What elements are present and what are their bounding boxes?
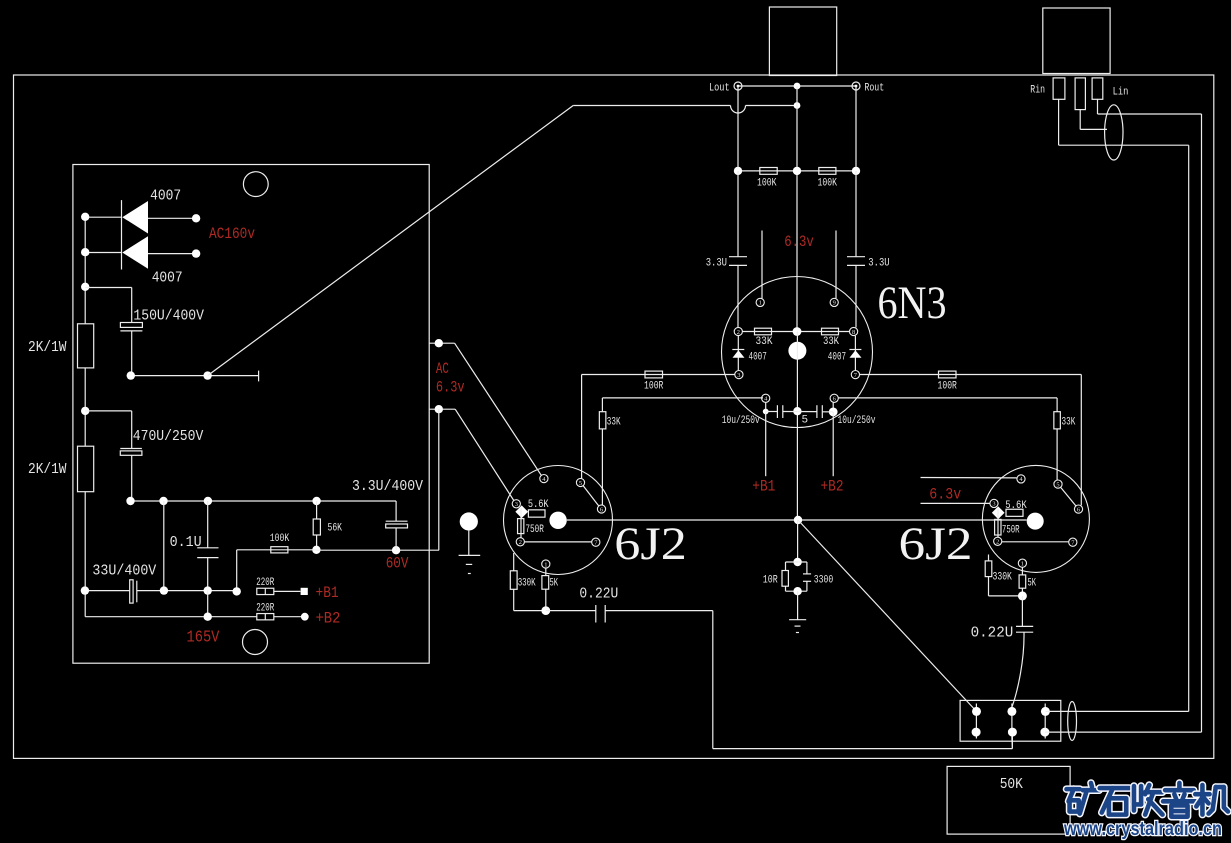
svg-text:1: 1	[759, 300, 762, 307]
svg-text:56K: 56K	[328, 523, 343, 535]
svg-text:6: 6	[600, 506, 603, 513]
svg-text:5: 5	[579, 480, 582, 487]
svg-text:AC160v: AC160v	[209, 225, 255, 243]
svg-text:6.3v: 6.3v	[436, 379, 465, 397]
svg-text:2: 2	[996, 539, 999, 546]
svg-text:220R: 220R	[256, 577, 274, 589]
svg-text:5.6K: 5.6K	[528, 499, 549, 511]
svg-text:4007: 4007	[749, 352, 767, 364]
svg-text:10u/250v: 10u/250v	[722, 415, 760, 427]
svg-text:8: 8	[852, 329, 855, 336]
svg-text:2K/1W: 2K/1W	[28, 461, 67, 478]
svg-text:100R: 100R	[938, 381, 958, 393]
svg-text:2K/1W: 2K/1W	[28, 339, 67, 356]
svg-text:33K: 33K	[823, 336, 839, 348]
svg-text:6.3v: 6.3v	[929, 485, 961, 503]
svg-text:33K: 33K	[607, 417, 621, 429]
svg-text:3.3U/400V: 3.3U/400V	[352, 478, 423, 495]
svg-text:100K: 100K	[818, 177, 838, 189]
svg-text:+B2: +B2	[316, 610, 341, 628]
svg-text:3.3U: 3.3U	[868, 258, 889, 270]
svg-text:10u/250v: 10u/250v	[838, 415, 876, 427]
svg-text:33K: 33K	[1062, 417, 1076, 429]
svg-text:3300: 3300	[814, 575, 834, 587]
svg-text:+B1: +B1	[316, 584, 339, 602]
svg-text:1: 1	[544, 561, 547, 568]
svg-text:4007: 4007	[828, 352, 846, 364]
svg-text:0.1U: 0.1U	[170, 534, 202, 551]
svg-text:4007: 4007	[152, 270, 183, 287]
svg-text:www.crystalradio.cn: www.crystalradio.cn	[1063, 818, 1222, 840]
svg-text:1: 1	[1021, 561, 1024, 568]
svg-text:750R: 750R	[525, 524, 544, 536]
svg-text:AC: AC	[436, 360, 449, 378]
svg-text:9: 9	[833, 300, 836, 307]
svg-text:6.3v: 6.3v	[784, 233, 814, 251]
svg-text:5K: 5K	[550, 578, 559, 590]
svg-text:330K: 330K	[518, 578, 536, 590]
svg-text:3: 3	[737, 372, 740, 379]
svg-text:5: 5	[802, 415, 809, 427]
svg-text:33K: 33K	[756, 336, 773, 348]
svg-text:33U/400V: 33U/400V	[92, 563, 156, 580]
svg-text:Lin: Lin	[1113, 87, 1129, 99]
svg-text:60V: 60V	[386, 555, 409, 573]
svg-text:3: 3	[515, 501, 518, 508]
svg-text:Rin: Rin	[1030, 85, 1045, 97]
svg-text:Rout: Rout	[864, 83, 884, 95]
svg-text:6N3: 6N3	[878, 277, 947, 329]
svg-text:330K: 330K	[993, 571, 1013, 583]
svg-text:100K: 100K	[270, 533, 290, 545]
svg-text:6: 6	[1077, 506, 1080, 513]
svg-text:6J2: 6J2	[899, 518, 973, 570]
svg-text:6J2: 6J2	[614, 518, 687, 570]
svg-text:2: 2	[519, 539, 522, 546]
svg-text:+B1: +B1	[752, 478, 775, 496]
svg-text:6: 6	[833, 396, 836, 403]
svg-text:165V: 165V	[187, 629, 221, 648]
svg-text:4007: 4007	[150, 188, 181, 205]
svg-text:0.22U: 0.22U	[579, 586, 618, 603]
svg-text:50K: 50K	[1000, 776, 1023, 793]
svg-text:5: 5	[1056, 481, 1059, 488]
svg-text:470U/250V: 470U/250V	[133, 428, 204, 445]
svg-text:2: 2	[737, 329, 740, 336]
svg-text:750R: 750R	[1002, 525, 1020, 537]
svg-text:5.6K: 5.6K	[1005, 500, 1027, 512]
svg-text:0.22U: 0.22U	[971, 625, 1014, 642]
svg-text:+B2: +B2	[821, 478, 844, 496]
svg-text:100R: 100R	[644, 381, 664, 393]
svg-text:Lout: Lout	[709, 83, 730, 95]
svg-text:100K: 100K	[757, 177, 777, 189]
svg-text:150U/400V: 150U/400V	[133, 308, 204, 325]
svg-text:3: 3	[992, 501, 995, 508]
svg-text:5K: 5K	[1028, 578, 1037, 590]
svg-text:3.3U: 3.3U	[706, 258, 727, 270]
svg-text:10R: 10R	[763, 575, 778, 587]
svg-text:220R: 220R	[256, 603, 274, 615]
